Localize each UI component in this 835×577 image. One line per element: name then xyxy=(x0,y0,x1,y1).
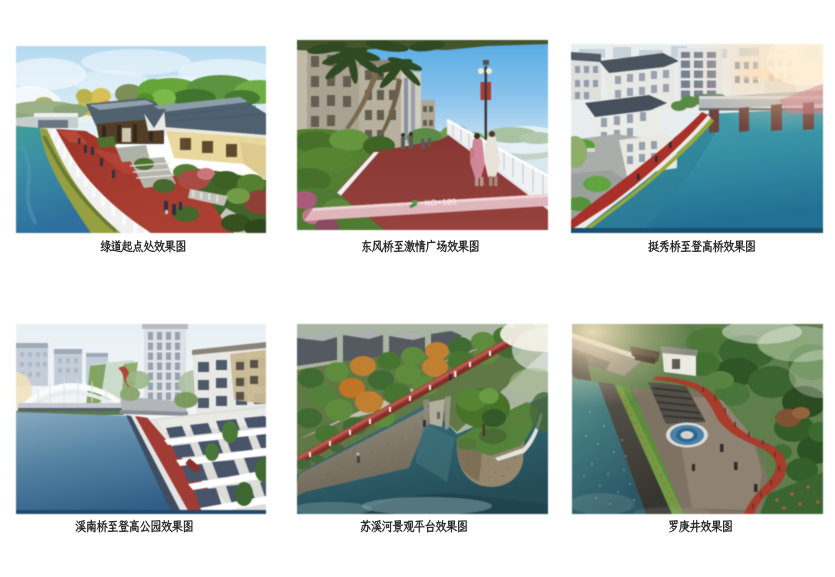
svg-text:KO+180: KO+180 xyxy=(425,196,457,208)
